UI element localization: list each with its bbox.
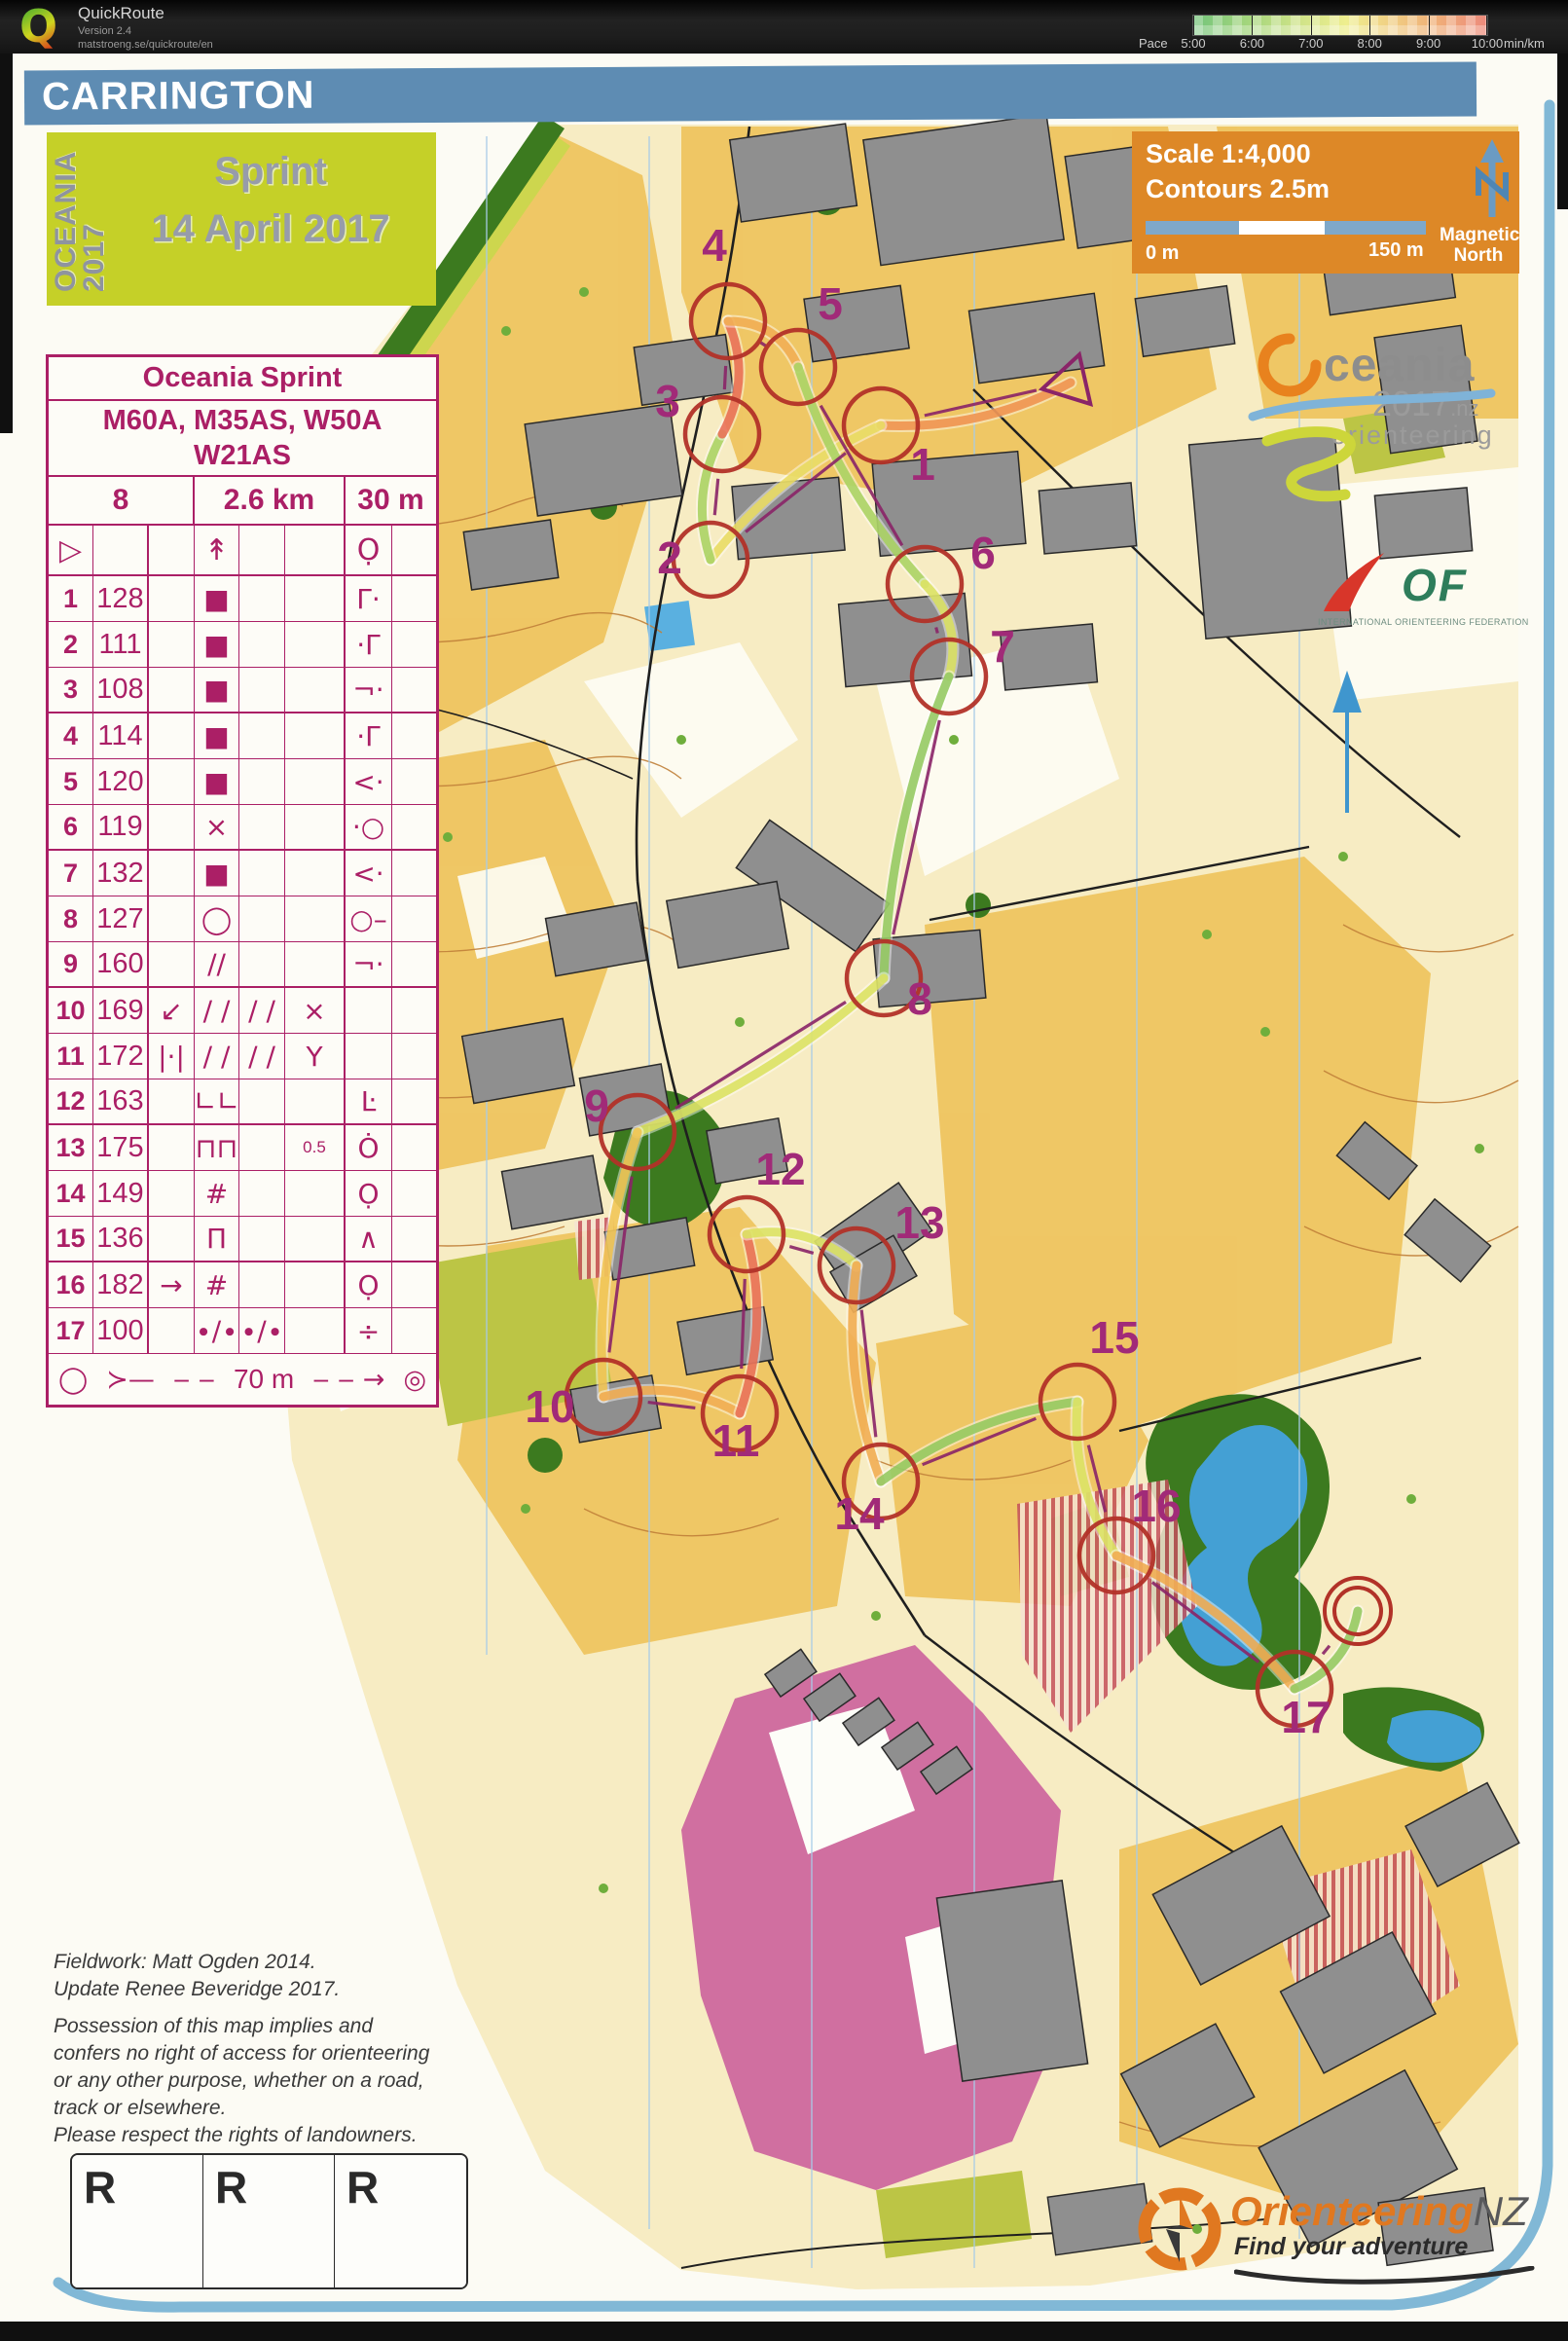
pace-label: 10:00 [1472, 36, 1504, 51]
control-cell [285, 576, 346, 622]
event-date: 14 April 2017 [115, 207, 426, 251]
pace-label: 6:00 [1240, 36, 1264, 51]
iof-sail-icon [1316, 551, 1404, 613]
control-cell [239, 526, 285, 574]
credit-line: confers no right of access for orienteer… [54, 2040, 482, 2067]
control-row: 11172|·|∕ ∕∕ ∕Y [49, 1034, 436, 1079]
control-cell [149, 1308, 195, 1354]
map-title-band: CARRINGTON [24, 61, 1477, 125]
control-cell [392, 988, 436, 1034]
control-row: 17100∙∕∙∙∕∙÷ [49, 1308, 436, 1354]
control-cell: 127 [93, 896, 149, 942]
control-number: 14 [834, 1488, 885, 1539]
control-row: 4114■·Γ [49, 713, 436, 759]
control-row: 2111■·Γ [49, 622, 436, 668]
control-cell: ■ [195, 668, 239, 713]
onz-wordmark: OrienteeringNZ [1230, 2188, 1528, 2235]
control-cell [392, 805, 436, 851]
control-cell [392, 1079, 436, 1125]
control-cell [392, 622, 436, 668]
control-number: 4 [702, 220, 727, 271]
control-cell: 2 [49, 622, 93, 668]
pace-label: 5:00 [1181, 36, 1205, 51]
course-leg-line [936, 627, 938, 633]
control-cell: <· [346, 759, 392, 805]
control-cell: Ọ [346, 526, 392, 574]
control-cell: ·Γ [346, 622, 392, 668]
control-cell: 13 [49, 1125, 93, 1171]
control-cell [149, 942, 195, 988]
control-cell [239, 1217, 285, 1262]
control-cell [392, 576, 436, 622]
control-number: 15 [1089, 1312, 1139, 1363]
control-cell: × [195, 805, 239, 851]
credit-line: Please respect the rights of landowners. [54, 2122, 482, 2149]
app-header: Q QuickRoute Version 2.4 matstroeng.se/q… [0, 0, 1568, 54]
control-cell: ∧ [346, 1217, 392, 1262]
control-cell: 11 [49, 1034, 93, 1079]
control-cell [149, 851, 195, 896]
control-cell [392, 1171, 436, 1217]
control-cell [285, 1308, 346, 1354]
iof-letters: OF [1402, 559, 1468, 611]
control-cell: 6 [49, 805, 93, 851]
map-title: CARRINGTON [42, 74, 315, 120]
control-cell: ■ [195, 759, 239, 805]
control-cell: ¬· [346, 668, 392, 713]
control-cell: 0.5 [285, 1125, 346, 1171]
control-cell: 175 [93, 1125, 149, 1171]
card-title: Oceania Sprint [49, 357, 436, 401]
control-cell: 7 [49, 851, 93, 896]
finish-row-item: ‒ ‒ [173, 1365, 215, 1395]
control-cell [239, 622, 285, 668]
control-number: 11 [712, 1415, 760, 1466]
pace-gradient-bar[interactable] [1192, 15, 1488, 36]
control-cell: 182 [93, 1262, 149, 1308]
control-cell: ↟ [195, 526, 239, 574]
control-cell: |·| [149, 1034, 195, 1079]
app-version: Version 2.4 [78, 25, 131, 37]
control-cell [392, 713, 436, 759]
control-cell [239, 805, 285, 851]
pace-tick [1486, 16, 1487, 35]
control-cell [392, 942, 436, 988]
control-cell [392, 526, 436, 574]
control-cell [285, 1079, 346, 1125]
control-cell: 8 [49, 896, 93, 942]
control-cell [149, 896, 195, 942]
control-cell [239, 713, 285, 759]
control-cell [285, 1217, 346, 1262]
control-cell [149, 526, 195, 574]
control-cell: ·○ [346, 805, 392, 851]
control-cell: ¬· [346, 942, 392, 988]
control-cell: ◯ [195, 896, 239, 942]
pace-label: min/km [1504, 36, 1545, 51]
scale-box: Scale 1:4,000 Contours 2.5m 0 m 150 m Ma… [1132, 131, 1519, 274]
pace-tick [1252, 16, 1253, 35]
control-cell [149, 1171, 195, 1217]
control-cell [239, 1125, 285, 1171]
event-name: Sprint [115, 150, 426, 194]
control-cell: 108 [93, 668, 149, 713]
scale-label: Scale 1:4,000 [1146, 139, 1311, 169]
control-cell: ∕ ∕ [195, 988, 239, 1034]
credit-line: track or elsewhere. [54, 2095, 482, 2122]
r-boxes: RRR [70, 2153, 468, 2289]
scan-edge-left [0, 54, 13, 433]
control-number: 1 [910, 439, 935, 490]
control-cell: 9 [49, 942, 93, 988]
control-number: 8 [907, 973, 932, 1024]
control-row: 6119×·○ [49, 805, 436, 851]
control-cell [239, 1171, 285, 1217]
pace-label: Pace [1139, 36, 1168, 51]
control-cell [285, 713, 346, 759]
control-cell: 119 [93, 805, 149, 851]
control-cell [346, 1034, 392, 1079]
onz-swoosh-icon [1234, 2266, 1536, 2289]
control-cell: ■ [195, 576, 239, 622]
card-stats: 8 2.6 km 30 m [49, 477, 436, 526]
course-number: 8 [49, 477, 195, 524]
control-cell [285, 805, 346, 851]
credit-line: Possession of this map implies and [54, 2013, 482, 2040]
control-cell: # [195, 1171, 239, 1217]
control-cell [149, 1125, 195, 1171]
finish-row-item: ◯ [58, 1365, 88, 1395]
control-cell [285, 1171, 346, 1217]
finish-row: ◯≻—‒ ‒70 m‒ ‒ →◎ [49, 1354, 436, 1405]
control-cell [149, 805, 195, 851]
control-description-card: Oceania Sprint M60A, M35AS, W50AW21AS 8 … [46, 354, 439, 1408]
control-cell: ∙∕∙ [195, 1308, 239, 1354]
control-row: 10169↙∕ ∕∕ ∕× [49, 988, 436, 1034]
credit-line: Update Renee Beveridge 2017. [54, 1976, 482, 2003]
control-number: 3 [655, 376, 680, 426]
control-number: 12 [755, 1144, 805, 1194]
control-cell: 111 [93, 622, 149, 668]
control-cell: Ŀ [346, 1079, 392, 1125]
symbol-header-row: ▷↟Ọ [49, 526, 436, 576]
control-number: 7 [990, 621, 1015, 672]
control-cell: 10 [49, 988, 93, 1034]
control-cell: 172 [93, 1034, 149, 1079]
control-cell [149, 576, 195, 622]
control-cell: ∕ ∕ [239, 988, 285, 1034]
control-row: 1128■Γ· [49, 576, 436, 622]
app-title: QuickRoute [78, 4, 164, 23]
pace-tick [1193, 16, 1194, 35]
control-cell [239, 896, 285, 942]
control-cell [392, 1308, 436, 1354]
control-cell [239, 576, 285, 622]
pace-label: 8:00 [1358, 36, 1382, 51]
oceania-swoosh-icon [1248, 387, 1501, 514]
control-number: 6 [970, 528, 996, 578]
event-vertical-label: OCEANIA2017 [53, 151, 108, 292]
map-credits: Fieldwork: Matt Ogden 2014.Update Renee … [54, 1949, 482, 2149]
control-cell: ○– [346, 896, 392, 942]
control-cell: ■ [195, 622, 239, 668]
control-cell [149, 622, 195, 668]
control-cell: 16 [49, 1262, 93, 1308]
north-arrow-icon [1469, 137, 1515, 221]
control-cell: 160 [93, 942, 149, 988]
card-classes: M60A, M35AS, W50AW21AS [49, 401, 436, 477]
control-cell: Ȯ [346, 1125, 392, 1171]
credit-line: Fieldwork: Matt Ogden 2014. [54, 1949, 482, 1976]
control-cell: ■ [195, 851, 239, 896]
control-cell [285, 668, 346, 713]
control-number: 2 [657, 532, 682, 583]
control-row: 13175⊓⊓0.5Ȯ [49, 1125, 436, 1171]
control-cell: ÷ [346, 1308, 392, 1354]
control-number: 16 [1131, 1481, 1181, 1531]
pace-label: 9:00 [1416, 36, 1440, 51]
registration-box: R [203, 2155, 335, 2287]
control-cell: Ọ [346, 1171, 392, 1217]
control-cell: 17 [49, 1308, 93, 1354]
control-cell: 114 [93, 713, 149, 759]
control-cell [392, 1125, 436, 1171]
control-cell: 136 [93, 1217, 149, 1262]
control-cell [149, 759, 195, 805]
control-row: 7132■<· [49, 851, 436, 896]
control-cell: 15 [49, 1217, 93, 1262]
control-cell [392, 1217, 436, 1262]
control-cell [149, 1217, 195, 1262]
control-row: 8127◯○– [49, 896, 436, 942]
control-cell: Π [195, 1217, 239, 1262]
contours-label: Contours 2.5m [1146, 174, 1330, 204]
control-cell [346, 988, 392, 1034]
control-row: 5120■<· [49, 759, 436, 805]
control-cell: ∙∕∙ [239, 1308, 285, 1354]
scale-end: 150 m [1368, 239, 1424, 262]
pace-tick [1369, 16, 1370, 35]
control-cell [239, 851, 285, 896]
iof-caption: INTERNATIONAL ORIENTEERING FEDERATION [1318, 617, 1529, 627]
control-cell: Γ· [346, 576, 392, 622]
control-number: 13 [894, 1197, 944, 1248]
control-cell: 120 [93, 759, 149, 805]
control-cell [285, 526, 346, 574]
control-cell [285, 942, 346, 988]
finish-row-item: ◎ [403, 1365, 426, 1395]
pace-label: 7:00 [1298, 36, 1323, 51]
oceania-logo: ceania 2017.nz orienteering [1258, 333, 1530, 503]
finish-row-item: 70 m [234, 1364, 294, 1395]
control-cell: ∕ ∕ [195, 1034, 239, 1079]
control-cell: ∕∕ [195, 942, 239, 988]
control-cell [239, 759, 285, 805]
control-cell: 100 [93, 1308, 149, 1354]
control-cell [392, 759, 436, 805]
control-cell: ■ [195, 713, 239, 759]
control-cell: ↙ [149, 988, 195, 1034]
control-cell: 5 [49, 759, 93, 805]
control-cell [149, 1079, 195, 1125]
course-leg-line [724, 366, 725, 389]
control-cell [285, 851, 346, 896]
control-row: 14149#Ọ [49, 1171, 436, 1217]
scan-edge-bottom [0, 2322, 1568, 2341]
control-cell [239, 942, 285, 988]
event-main-label: Sprint 14 April 2017 [115, 150, 426, 251]
control-cell: ·Γ [346, 713, 392, 759]
control-rows: ▷↟Ọ1128■Γ·2111■·Γ3108■¬·4114■·Γ5120■<·61… [49, 526, 436, 1354]
control-cell: <· [346, 851, 392, 896]
orienteering-nz-logo: OrienteeringNZ Find your adventure [1137, 2186, 1546, 2298]
finish-row-item: ‒ ‒ → [312, 1365, 384, 1395]
control-cell: × [285, 988, 346, 1034]
control-cell: Ọ [346, 1262, 392, 1308]
control-row: 3108■¬· [49, 668, 436, 713]
control-cell: 4 [49, 713, 93, 759]
control-cell [149, 668, 195, 713]
control-row: 9160∕∕¬· [49, 942, 436, 988]
pace-tick [1311, 16, 1312, 35]
scan-edge-right [1557, 54, 1568, 209]
control-cell [392, 1262, 436, 1308]
control-cell: 128 [93, 576, 149, 622]
control-cell: → [149, 1262, 195, 1308]
control-number: 9 [584, 1080, 609, 1131]
control-cell [239, 1079, 285, 1125]
onz-tagline: Find your adventure [1234, 2233, 1468, 2261]
app-url: matstroeng.se/quickroute/en [78, 39, 213, 51]
scale-zero: 0 m [1146, 242, 1179, 265]
control-cell: 163 [93, 1079, 149, 1125]
control-cell: 3 [49, 668, 93, 713]
control-cell: 14 [49, 1171, 93, 1217]
control-cell [392, 1034, 436, 1079]
registration-box: R [335, 2155, 466, 2287]
control-cell [392, 851, 436, 896]
control-cell [239, 668, 285, 713]
control-cell: ▷ [49, 526, 93, 574]
control-cell [285, 896, 346, 942]
control-row: 16182→#Ọ [49, 1262, 436, 1308]
control-cell [392, 668, 436, 713]
control-row: 15136Π∧ [49, 1217, 436, 1262]
control-cell [239, 1262, 285, 1308]
course-climb: 30 m [346, 477, 436, 524]
registration-box: R [72, 2155, 203, 2287]
credit-line: or any other purpose, whether on a road, [54, 2067, 482, 2095]
iof-logo: OF INTERNATIONAL ORIENTEERING FEDERATION [1316, 551, 1525, 643]
control-number: 17 [1281, 1692, 1331, 1742]
control-number: 5 [818, 278, 843, 329]
scale-bar [1146, 221, 1426, 235]
control-cell [93, 526, 149, 574]
control-cell [392, 896, 436, 942]
control-cell [285, 1262, 346, 1308]
finish-row-item: ≻— [106, 1365, 155, 1395]
control-cell: 12 [49, 1079, 93, 1125]
control-cell: ⊓⊓ [195, 1125, 239, 1171]
control-cell: 132 [93, 851, 149, 896]
control-cell [285, 759, 346, 805]
control-cell [149, 713, 195, 759]
onz-compass-icon [1137, 2186, 1222, 2272]
control-cell: Y [285, 1034, 346, 1079]
control-row: 12163∟∟Ŀ [49, 1079, 436, 1125]
control-cell: 169 [93, 988, 149, 1034]
control-cell: 1 [49, 576, 93, 622]
control-cell: 149 [93, 1171, 149, 1217]
quickroute-logo-icon: Q [19, 0, 57, 53]
event-box: OCEANIA2017 Sprint 14 April 2017 [47, 132, 436, 306]
course-length: 2.6 km [195, 477, 346, 524]
control-cell: ∕ ∕ [239, 1034, 285, 1079]
control-cell: ∟∟ [195, 1079, 239, 1125]
pace-tick [1429, 16, 1430, 35]
control-cell: # [195, 1262, 239, 1308]
magnetic-north-label: MagneticNorth [1440, 225, 1517, 266]
control-cell [285, 622, 346, 668]
control-number: 10 [525, 1381, 574, 1432]
